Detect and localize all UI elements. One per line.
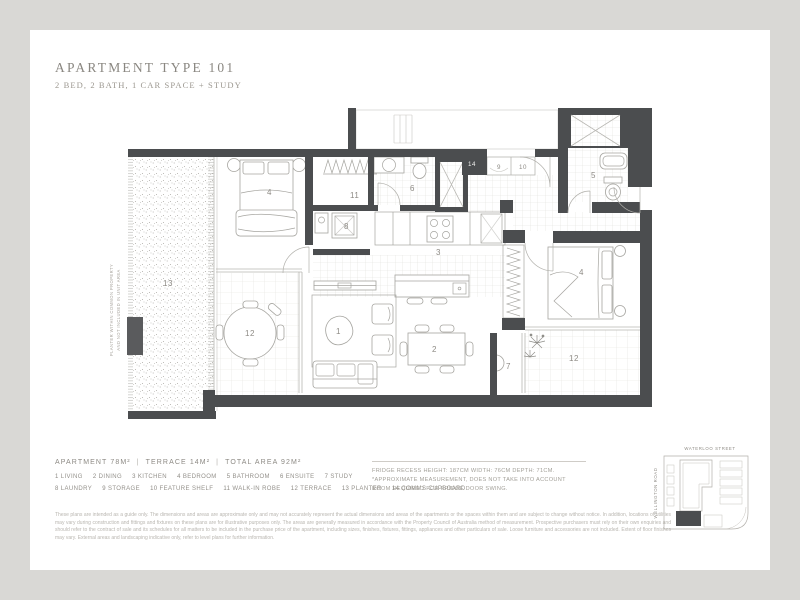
brochure-page: APARTMENT TYPE 101 2 BED, 2 BATH, 1 CAR … xyxy=(30,30,770,570)
label-robe: 11 xyxy=(350,191,359,200)
page-title: APARTMENT TYPE 101 xyxy=(55,60,235,76)
label-storage: 9 xyxy=(497,164,501,171)
label-comms: 14 xyxy=(468,161,476,168)
label-terrace-left: 12 xyxy=(245,329,255,338)
legend-item: 8LAUNDRY xyxy=(55,486,92,492)
terrace-area: TERRACE 14M² xyxy=(146,459,211,466)
legend-item: 2DINING xyxy=(93,474,122,480)
label-bedroom-2: 4 xyxy=(579,268,584,277)
planter-note-line1: PLANTER WITHIN COMMON PROPERTY xyxy=(110,264,114,356)
planter-note-line2: AND NOT INCLUDED IN UNIT AREA xyxy=(116,269,121,350)
legend-item: 1LIVING xyxy=(55,474,83,480)
bed-2 xyxy=(548,246,626,320)
legend-item: 3KITCHEN xyxy=(132,474,167,480)
disclaimer-text: These plans are intended as a guide only… xyxy=(55,512,671,542)
legend-item: 11WALK-IN ROBE xyxy=(223,486,280,492)
study-chair xyxy=(496,355,504,371)
legend-row-1: 1LIVING 2DINING 3KITCHEN 4BEDROOM 5BATHR… xyxy=(55,474,361,480)
fridge-note: FRIDGE RECESS HEIGHT: 187CM WIDTH: 76CM … xyxy=(372,461,586,495)
kitchen-island xyxy=(395,275,469,304)
laundry-fixtures xyxy=(315,213,357,238)
legend-item: 10FEATURE SHELF xyxy=(150,486,213,492)
apartment-location-highlight xyxy=(676,511,701,526)
label-bathroom: 5 xyxy=(591,171,596,180)
page-subtitle: 2 BED, 2 BATH, 1 CAR SPACE + STUDY xyxy=(55,80,242,90)
label-planter: 13 xyxy=(163,279,173,288)
total-area: TOTAL AREA 92M² xyxy=(225,459,301,466)
kitchen-counter xyxy=(375,212,505,245)
label-dining: 2 xyxy=(432,345,437,354)
legend-item: 5BATHROOM xyxy=(227,474,270,480)
wardrobe xyxy=(503,245,524,318)
floor-plan: 4 11 6 8 14 9 10 5 3 13 12 1 2 7 12 4 PL… xyxy=(110,105,655,425)
legend-item: 12TERRACE xyxy=(291,486,332,492)
planter-seat xyxy=(127,317,143,355)
label-bedroom-1: 4 xyxy=(267,188,272,197)
apartment-area: APARTMENT 78M² xyxy=(55,459,131,466)
street-label-left: WELLINGTON ROAD xyxy=(653,468,658,519)
area-summary: APARTMENT 78M²|TERRACE 14M²|TOTAL AREA 9… xyxy=(55,459,301,466)
label-kitchen: 3 xyxy=(436,248,441,257)
legend-item: 9STORAGE xyxy=(102,486,140,492)
label-feature-shelf: 10 xyxy=(519,164,527,171)
bed-1 xyxy=(228,159,306,237)
label-living: 1 xyxy=(336,327,341,336)
street-label-top: WATERLOO STREET xyxy=(684,446,735,451)
legend-item: 7STUDY xyxy=(325,474,353,480)
living-furniture xyxy=(312,281,396,388)
legend-item: 6ENSUITE xyxy=(280,474,315,480)
label-study: 7 xyxy=(506,362,511,371)
page: { "header": { "title": "APARTMENT TYPE 1… xyxy=(0,0,800,600)
floor-plan-container: 4 11 6 8 14 9 10 5 3 13 12 1 2 7 12 4 PL… xyxy=(110,105,655,425)
label-terrace-right: 12 xyxy=(569,354,579,363)
label-laundry: 8 xyxy=(344,222,349,231)
legend-item: 4BEDROOM xyxy=(177,474,217,480)
common-stair xyxy=(394,115,412,143)
label-ensuite: 6 xyxy=(410,184,415,193)
